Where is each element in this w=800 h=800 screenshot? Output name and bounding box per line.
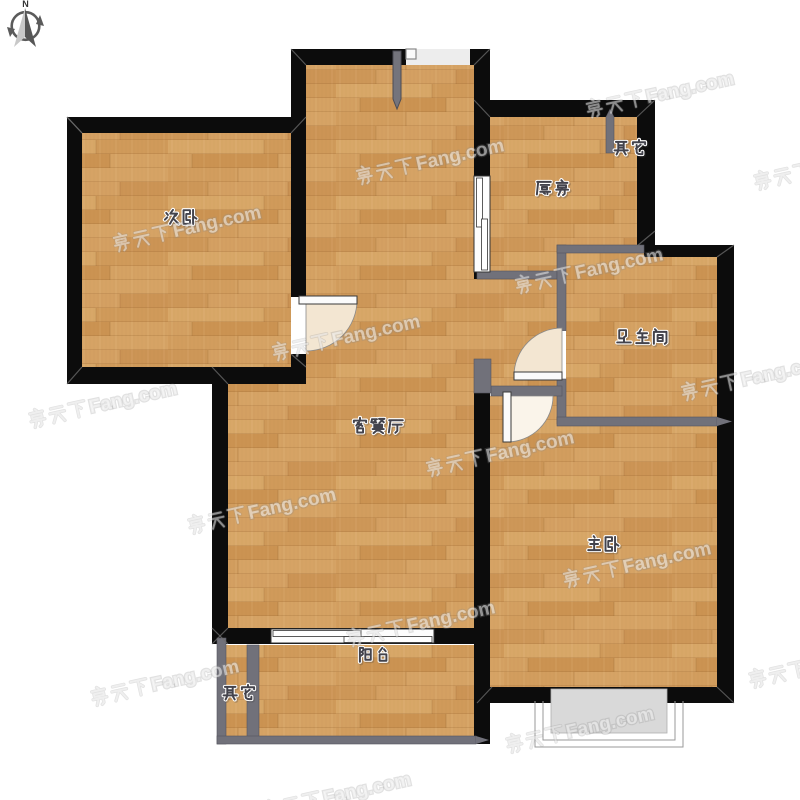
svg-text:N: N (22, 0, 29, 9)
